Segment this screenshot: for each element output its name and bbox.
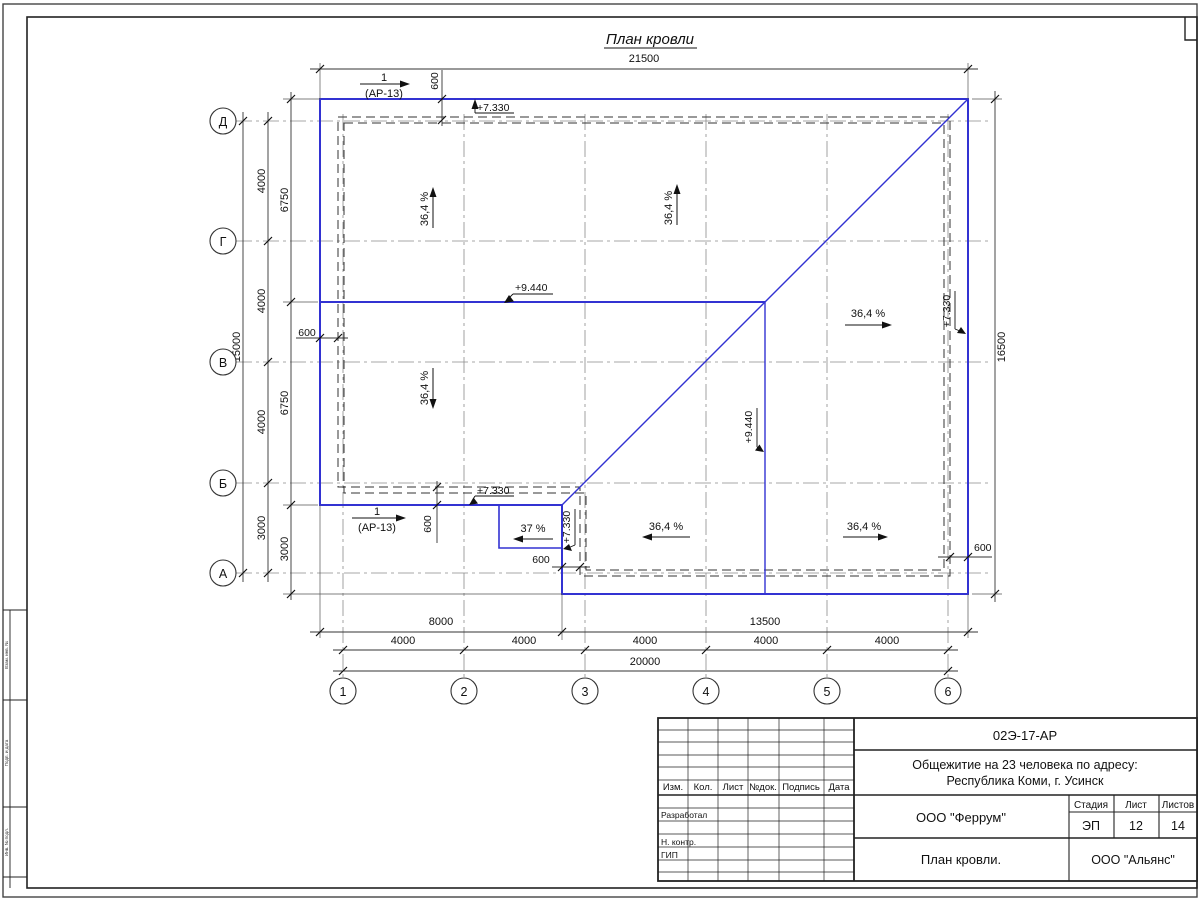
dimension-ticks [239,65,999,675]
dim-left-roof: 6750 [279,391,291,415]
dim-bottom-seg: 4000 [512,635,536,647]
dim-left-roof: 6750 [279,188,291,212]
slope-arrowhead [513,536,523,543]
title-block: 02Э-17-АР Общежитие на 23 человека по ад… [658,718,1197,881]
dim-right-total: 16500 [996,332,1008,363]
wall-outer-line [338,117,950,576]
sheets-total: 14 [1171,819,1185,833]
extension-top [320,63,968,99]
dim-eave-notch-v: 600 [422,515,434,533]
slope-arrowhead [878,534,888,541]
axis-label-row: Д [219,115,228,129]
dim-bottom-seg: 4000 [754,635,778,647]
tb-col-header: Кол. [694,782,713,793]
tb-col-header: №док. [749,782,777,793]
designer-org: ООО "Феррум" [916,810,1006,825]
document-code: 02Э-17-АР [993,728,1057,743]
slope-label-porch: 37 % [520,523,545,535]
axis-label-col: 2 [461,685,468,699]
axis-label-row: Б [219,477,227,491]
slope-arrowhead [642,534,652,541]
dim-bottom-seg: 4000 [633,635,657,647]
slope-arrowhead [674,184,681,194]
drawing-title: План кровли [604,31,697,48]
customer-org: ООО "Альянс" [1091,853,1175,867]
side-stamp: Взам. инв. № Подп. и дата Инв. № подл. [3,610,27,888]
axis-label-col: 4 [703,685,710,699]
elev-mark: +9.440 [743,411,755,444]
dim-left-roof: 3000 [279,537,291,561]
elev-arrowhead [469,498,478,506]
dim-eave-notch-h: 600 [532,554,550,566]
side-stamp-label: Инв. № подл. [4,828,9,856]
elev-arrowhead [755,445,764,453]
tb-col-header: Лист [723,782,744,793]
roof-plan [320,99,968,594]
section-arrowhead [396,515,406,522]
axis-label-row: В [219,356,227,370]
axis-label-col: 1 [340,685,347,699]
slope-label: 36,4 % [649,521,683,533]
section-sheet-ref: (АР-13) [365,88,403,100]
elev-mark: +9.440 [515,282,548,294]
side-stamp-label: Подп. и дата [4,739,9,766]
axis-label-row: А [219,567,228,581]
slope-label: 36,4 % [663,191,675,225]
slope-arrowhead [882,322,892,329]
elev-leader [757,408,760,449]
elev-mark: +7.330 [477,485,510,497]
drawing-sheet: Взам. инв. № Подп. и дата Инв. № подл. П… [0,0,1200,900]
corner-box [1185,17,1197,40]
dim-eave-right: 600 [974,542,992,554]
sheets-header: Листов [1162,800,1195,811]
elev-mark: +7.330 [561,511,573,544]
slope-label: 36,4 % [419,371,431,405]
dim-left-seg: 4000 [256,289,268,313]
dim-left-seg: 4000 [256,410,268,434]
dim-top-total: 21500 [629,53,660,65]
project-name-line2: Республика Коми, г. Усинск [947,774,1104,788]
extension-lines [283,63,1002,640]
section-number: 1 [381,72,387,84]
dimension-lines [243,69,995,671]
dim-eave-left: 600 [298,327,316,339]
dim-bottom-13500: 13500 [750,616,781,628]
elev-arrowhead [563,544,572,551]
axis-label-col: 5 [824,685,831,699]
tb-row-label: Разработал [661,810,707,820]
dim-bottom-8000: 8000 [429,616,453,628]
tb-col-header: Подпись [782,782,820,793]
elev-mark: +7.330 [941,295,953,328]
wall-outline-dashed [338,117,950,576]
tb-col-header: Изм. [663,782,683,793]
stage-value: ЭП [1082,819,1100,833]
tb-col-header: Дата [828,782,850,793]
axis-label-col: 3 [582,685,589,699]
tb-row-label: Н. контр. [661,837,696,847]
axis-grid [236,114,988,677]
sheet-number: 12 [1129,819,1143,833]
axis-label-col: 6 [945,685,952,699]
section-arrowhead [400,81,410,88]
elev-mark: +7.330 [477,102,510,114]
dim-bottom-seg: 4000 [391,635,415,647]
project-name-line1: Общежитие на 23 человека по адресу: [912,758,1137,772]
slope-label: 36,4 % [419,192,431,226]
dim-left-seg: 4000 [256,169,268,193]
dim-left-seg: 3000 [256,516,268,540]
slope-label: 36,4 % [847,521,881,533]
axis-markers [210,108,961,704]
section-sheet-ref: (АР-13) [358,522,396,534]
sheet-header: Лист [1125,800,1147,811]
page-title: План кровли [606,31,695,48]
drawing-title-cell: План кровли. [921,852,1001,867]
dim-eave-top: 600 [429,72,441,90]
dim-bottom-seg: 4000 [875,635,899,647]
side-stamp-label: Взам. инв. № [4,641,9,669]
stage-header: Стадия [1074,800,1108,811]
elev-leader [507,294,553,300]
dim-bottom-total: 20000 [630,656,661,668]
slope-label: 36,4 % [851,308,885,320]
roof-plan-drawing: Взам. инв. № Подп. и дата Инв. № подл. П… [0,0,1200,900]
section-number: 1 [374,506,380,518]
roof-outline [320,99,968,594]
tb-row-label: ГИП [661,850,678,860]
axis-label-row: Г [220,235,227,249]
elev-leader [955,291,960,331]
